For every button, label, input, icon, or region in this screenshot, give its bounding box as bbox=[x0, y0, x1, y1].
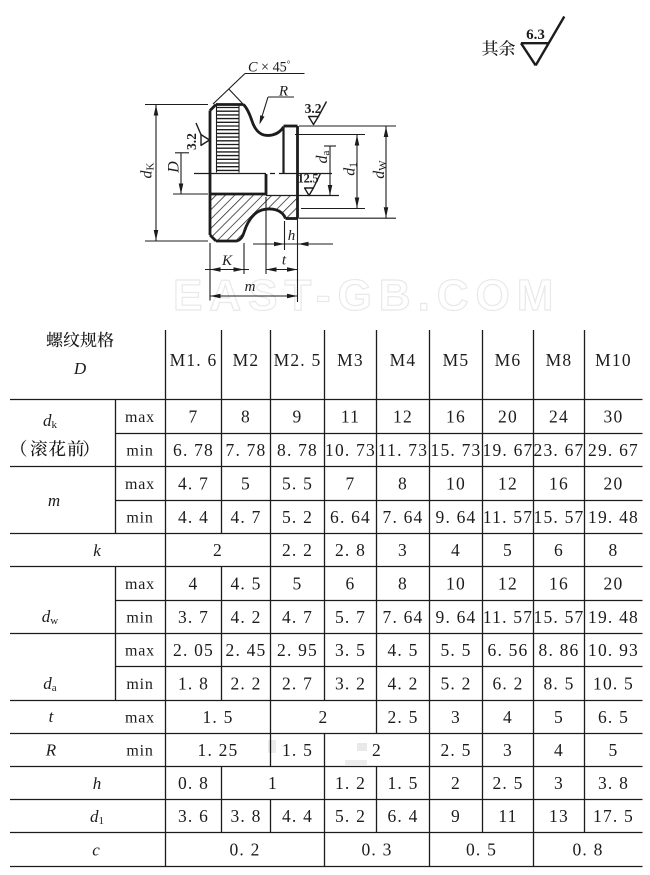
svg-text:7: 7 bbox=[346, 474, 356, 494]
svg-text:9. 64: 9. 64 bbox=[436, 507, 477, 527]
svg-text:4: 4 bbox=[189, 574, 199, 594]
svg-text:2. 95: 2. 95 bbox=[277, 640, 318, 660]
svg-text:5. 7: 5. 7 bbox=[335, 607, 366, 627]
svg-text:3. 7: 3. 7 bbox=[178, 607, 209, 627]
svg-text:6. 4: 6. 4 bbox=[387, 806, 418, 826]
svg-text:4. 2: 4. 2 bbox=[230, 607, 261, 627]
svg-text:5: 5 bbox=[241, 474, 251, 494]
svg-text:8: 8 bbox=[609, 540, 619, 560]
svg-text:2. 05: 2. 05 bbox=[173, 640, 214, 660]
svg-text:M4: M4 bbox=[390, 350, 417, 370]
svg-text:5: 5 bbox=[609, 740, 619, 760]
svg-text:2. 2: 2. 2 bbox=[282, 540, 313, 560]
svg-text:20: 20 bbox=[604, 474, 624, 494]
svg-text:2: 2 bbox=[319, 707, 329, 727]
svg-text:11. 57: 11. 57 bbox=[483, 607, 533, 627]
svg-text:10: 10 bbox=[446, 474, 466, 494]
svg-text:1. 25: 1. 25 bbox=[198, 740, 239, 760]
svg-text:D: D bbox=[166, 161, 183, 174]
svg-text:8: 8 bbox=[398, 474, 408, 494]
svg-text:12: 12 bbox=[498, 574, 518, 594]
svg-text:R: R bbox=[45, 741, 57, 760]
svg-text:min: min bbox=[126, 443, 153, 460]
svg-text:3. 2: 3. 2 bbox=[335, 674, 366, 694]
svg-text:5. 2: 5. 2 bbox=[335, 806, 366, 826]
svg-text:10. 5: 10. 5 bbox=[593, 674, 634, 694]
svg-text:7: 7 bbox=[189, 407, 199, 427]
svg-text:D: D bbox=[73, 359, 87, 378]
svg-text:3. 5: 3. 5 bbox=[335, 640, 366, 660]
svg-text:16: 16 bbox=[549, 574, 569, 594]
svg-text:4. 5: 4. 5 bbox=[387, 640, 418, 660]
svg-text:7. 64: 7. 64 bbox=[383, 607, 424, 627]
svg-text:max: max bbox=[125, 643, 155, 660]
svg-text:2: 2 bbox=[451, 773, 461, 793]
svg-text:9: 9 bbox=[451, 806, 461, 826]
svg-text:M2. 5: M2. 5 bbox=[274, 350, 322, 370]
svg-text:16: 16 bbox=[446, 407, 466, 427]
svg-text:3.2: 3.2 bbox=[184, 133, 199, 150]
svg-text:4: 4 bbox=[554, 740, 564, 760]
svg-text:0. 8: 0. 8 bbox=[178, 773, 209, 793]
svg-text:15. 57: 15. 57 bbox=[534, 607, 585, 627]
svg-text:0. 2: 0. 2 bbox=[229, 840, 260, 860]
svg-text:3. 6: 3. 6 bbox=[178, 806, 209, 826]
svg-text:2. 7: 2. 7 bbox=[282, 674, 313, 694]
svg-text:5. 2: 5. 2 bbox=[440, 674, 471, 694]
svg-text:3: 3 bbox=[554, 773, 564, 793]
svg-text:11. 57: 11. 57 bbox=[483, 507, 533, 527]
svg-text:5. 5: 5. 5 bbox=[282, 474, 313, 494]
svg-text:12: 12 bbox=[393, 407, 413, 427]
svg-text:5: 5 bbox=[554, 707, 564, 727]
svg-text:10: 10 bbox=[446, 574, 466, 594]
svg-text:29. 67: 29. 67 bbox=[588, 440, 639, 460]
svg-text:M2: M2 bbox=[233, 350, 260, 370]
svg-text:17. 5: 17. 5 bbox=[593, 806, 634, 826]
svg-text:min: min bbox=[126, 676, 153, 693]
svg-text:11. 73: 11. 73 bbox=[378, 440, 428, 460]
svg-text:7. 64: 7. 64 bbox=[383, 507, 424, 527]
svg-text:1. 8: 1. 8 bbox=[178, 674, 209, 694]
svg-text:9: 9 bbox=[293, 407, 303, 427]
svg-text:M1. 6: M1. 6 bbox=[170, 350, 218, 370]
svg-text:20: 20 bbox=[604, 574, 624, 594]
svg-text:3. 8: 3. 8 bbox=[598, 773, 629, 793]
svg-text:11: 11 bbox=[341, 407, 360, 427]
svg-text:23. 67: 23. 67 bbox=[534, 440, 585, 460]
svg-text:6. 64: 6. 64 bbox=[330, 507, 371, 527]
svg-text:8. 5: 8. 5 bbox=[543, 674, 574, 694]
svg-text:max: max bbox=[125, 710, 155, 727]
svg-text:min: min bbox=[126, 510, 153, 527]
svg-text:13: 13 bbox=[549, 806, 569, 826]
svg-text:k: k bbox=[93, 541, 101, 560]
svg-text:8: 8 bbox=[398, 574, 408, 594]
svg-text:1. 5: 1. 5 bbox=[202, 707, 233, 727]
svg-text:m: m bbox=[245, 279, 256, 295]
svg-text:4. 4: 4. 4 bbox=[282, 806, 313, 826]
svg-text:0. 5: 0. 5 bbox=[466, 840, 497, 860]
svg-text:3: 3 bbox=[503, 740, 513, 760]
svg-text:M6: M6 bbox=[495, 350, 522, 370]
svg-text:K: K bbox=[221, 253, 233, 269]
svg-text:15. 73: 15. 73 bbox=[431, 440, 482, 460]
svg-text:4: 4 bbox=[503, 707, 513, 727]
svg-text:4. 5: 4. 5 bbox=[230, 574, 261, 594]
svg-text:2. 45: 2. 45 bbox=[226, 640, 267, 660]
svg-text:4. 7: 4. 7 bbox=[230, 507, 261, 527]
svg-text:5: 5 bbox=[503, 540, 513, 560]
svg-text:3. 8: 3. 8 bbox=[230, 806, 261, 826]
svg-text:20: 20 bbox=[498, 407, 518, 427]
svg-text:5. 2: 5. 2 bbox=[282, 507, 313, 527]
svg-text:6.3: 6.3 bbox=[526, 27, 545, 43]
svg-text:2. 2: 2. 2 bbox=[230, 674, 261, 694]
svg-text:1. 5: 1. 5 bbox=[387, 773, 418, 793]
svg-text:6. 78: 6. 78 bbox=[173, 440, 214, 460]
svg-text:min: min bbox=[126, 610, 153, 627]
svg-text:8. 78: 8. 78 bbox=[277, 440, 318, 460]
svg-text:3: 3 bbox=[398, 540, 408, 560]
svg-text:M3: M3 bbox=[337, 350, 364, 370]
svg-text:1. 5: 1. 5 bbox=[282, 740, 313, 760]
svg-text:2. 5: 2. 5 bbox=[440, 740, 471, 760]
svg-text:6. 56: 6. 56 bbox=[488, 640, 529, 660]
svg-text:8. 86: 8. 86 bbox=[539, 640, 580, 660]
svg-text:16: 16 bbox=[549, 474, 569, 494]
svg-text:5. 5: 5. 5 bbox=[440, 640, 471, 660]
svg-text:2. 8: 2. 8 bbox=[335, 540, 366, 560]
svg-text:c: c bbox=[92, 841, 100, 860]
svg-text:1. 2: 1. 2 bbox=[335, 773, 366, 793]
svg-text:M8: M8 bbox=[546, 350, 573, 370]
svg-text:M5: M5 bbox=[443, 350, 470, 370]
svg-text:19. 48: 19. 48 bbox=[588, 607, 639, 627]
svg-text:2. 5: 2. 5 bbox=[387, 707, 418, 727]
svg-text:10. 93: 10. 93 bbox=[588, 640, 639, 660]
svg-text:6. 2: 6. 2 bbox=[492, 674, 523, 694]
svg-text:9. 64: 9. 64 bbox=[436, 607, 477, 627]
svg-text:30: 30 bbox=[604, 407, 624, 427]
svg-text:11: 11 bbox=[498, 806, 517, 826]
svg-text:max: max bbox=[125, 476, 155, 493]
svg-text:19. 67: 19. 67 bbox=[483, 440, 534, 460]
svg-text:10. 73: 10. 73 bbox=[325, 440, 376, 460]
svg-text:max: max bbox=[125, 576, 155, 593]
svg-text:h: h bbox=[93, 774, 102, 793]
svg-text:24: 24 bbox=[549, 407, 569, 427]
svg-text:12: 12 bbox=[498, 474, 518, 494]
svg-text:m: m bbox=[48, 491, 60, 510]
svg-text:6. 5: 6. 5 bbox=[598, 707, 629, 727]
svg-text:3: 3 bbox=[451, 707, 461, 727]
svg-text:M10: M10 bbox=[595, 350, 632, 370]
svg-text:4. 7: 4. 7 bbox=[282, 607, 313, 627]
svg-text:C × 45°: C × 45° bbox=[248, 59, 291, 76]
svg-text:15. 57: 15. 57 bbox=[534, 507, 585, 527]
svg-text:6: 6 bbox=[554, 540, 564, 560]
svg-text:2. 5: 2. 5 bbox=[492, 773, 523, 793]
svg-text:2: 2 bbox=[372, 740, 382, 760]
svg-text:min: min bbox=[126, 743, 153, 760]
svg-text:0. 3: 0. 3 bbox=[361, 840, 392, 860]
svg-text:4. 4: 4. 4 bbox=[178, 507, 209, 527]
svg-text:8: 8 bbox=[241, 407, 251, 427]
svg-text:7. 78: 7. 78 bbox=[226, 440, 267, 460]
svg-text:6: 6 bbox=[346, 574, 356, 594]
svg-text:4: 4 bbox=[451, 540, 461, 560]
svg-text:1: 1 bbox=[268, 773, 278, 793]
svg-text:4. 7: 4. 7 bbox=[178, 474, 209, 494]
svg-text:h: h bbox=[288, 228, 296, 244]
svg-text:5: 5 bbox=[293, 574, 303, 594]
svg-text:0. 8: 0. 8 bbox=[572, 840, 603, 860]
svg-text:max: max bbox=[125, 409, 155, 426]
svg-text:19. 48: 19. 48 bbox=[588, 507, 639, 527]
svg-text:2: 2 bbox=[213, 540, 223, 560]
svg-text:4. 2: 4. 2 bbox=[387, 674, 418, 694]
